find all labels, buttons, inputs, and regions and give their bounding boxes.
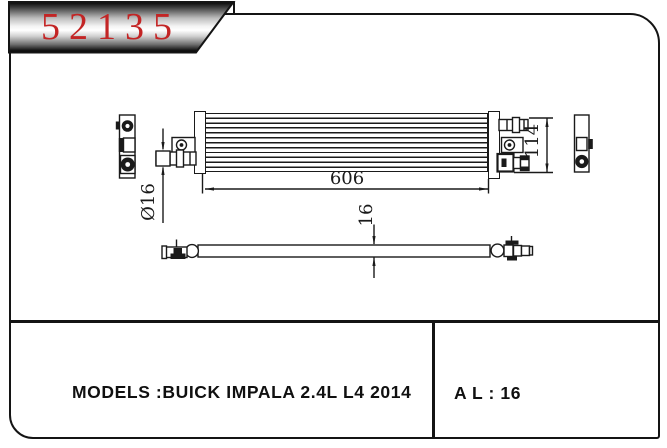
core-left-fittings xyxy=(156,138,196,168)
dimension-thickness-label: 16 xyxy=(358,195,376,235)
dimension-core-width-label: 606 xyxy=(322,170,372,188)
spec-models: MODELS :BUICK IMPALA 2.4L L4 2014 xyxy=(72,381,411,404)
datasheet-page: 52135 xyxy=(0,0,667,448)
left-mount-bracket-side-view xyxy=(116,115,135,178)
dimension-pipe-diameter-label: Ø16 xyxy=(140,180,158,224)
dimension-core-height-label: 114 xyxy=(524,119,542,163)
right-mount-bracket-side-view xyxy=(575,115,593,172)
cooler-top-view xyxy=(162,236,533,261)
spec-right-column: A L : 16 DPI : OEM : 20850707 NISSENS: xyxy=(454,340,612,448)
dimension-pipe-diameter-lines xyxy=(161,129,164,224)
spec-al: A L : 16 xyxy=(454,383,612,405)
spec-left-column: MODELS :BUICK IMPALA 2.4L L4 2014 CORE S… xyxy=(72,336,411,448)
